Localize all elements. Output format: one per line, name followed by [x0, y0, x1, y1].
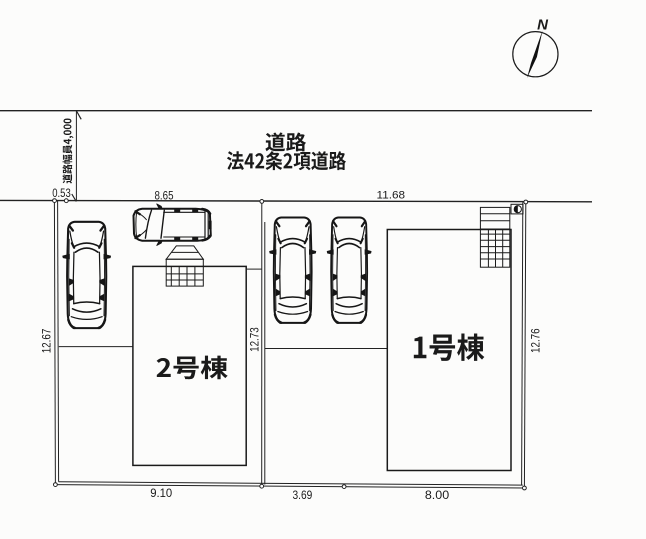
- svg-text:8.65: 8.65: [155, 191, 174, 203]
- svg-text:12.73: 12.73: [248, 327, 262, 352]
- svg-text:8.00: 8.00: [425, 490, 449, 502]
- svg-text:9.10: 9.10: [150, 488, 172, 500]
- svg-text:3.69: 3.69: [293, 490, 313, 502]
- svg-text:12.76: 12.76: [528, 328, 542, 353]
- svg-text:11.68: 11.68: [377, 190, 406, 202]
- svg-text:12.67: 12.67: [40, 328, 54, 353]
- svg-text:N: N: [537, 17, 549, 34]
